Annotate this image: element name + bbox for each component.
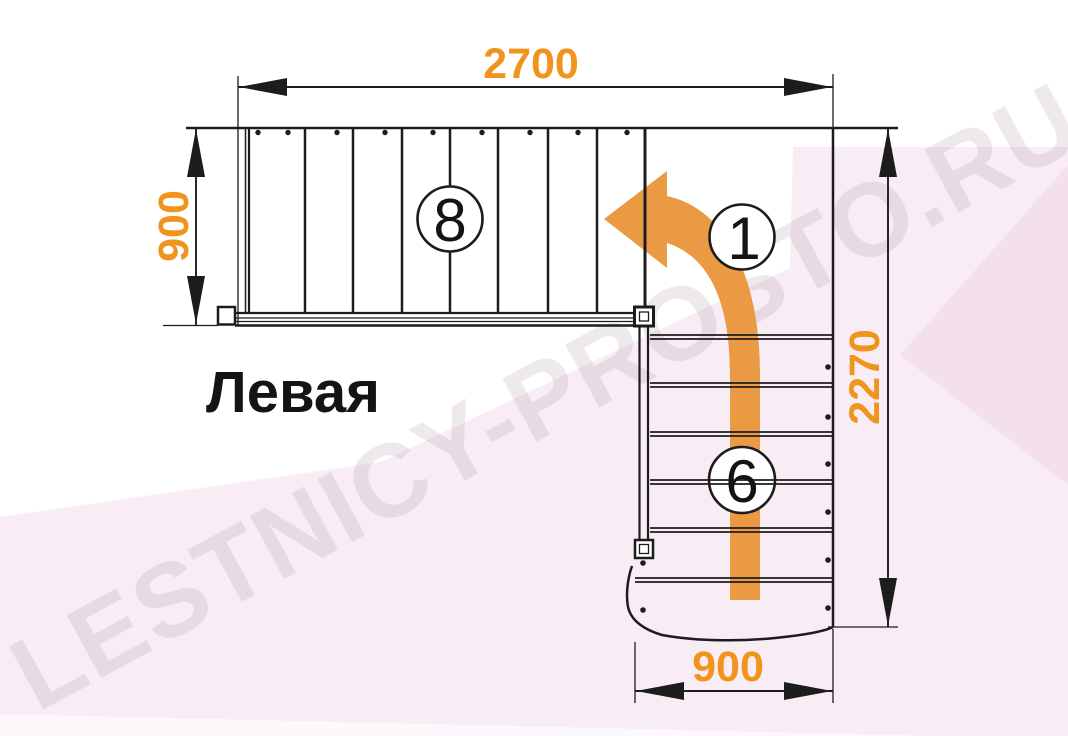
tread-dot [825, 364, 831, 370]
tread-dot [825, 557, 831, 563]
tread-dot [825, 509, 831, 515]
tread-dot [825, 414, 831, 420]
baluster-dot [382, 130, 387, 135]
baluster-dot [285, 130, 290, 135]
baluster-dot [479, 130, 484, 135]
dimension-arrow-left [239, 78, 287, 96]
dimension-bottom-value: 900 [692, 643, 764, 691]
newel-post-corner [635, 307, 654, 326]
baluster-dot [430, 130, 435, 135]
baluster-dot [527, 130, 532, 135]
tread-dot [825, 461, 831, 467]
lower-flight-count-label: 6 [725, 448, 758, 515]
baluster-dot [334, 130, 339, 135]
staircase-plan-diagram: LESTNICY-PROSTO.RU [0, 0, 1068, 736]
baluster-dot [575, 130, 580, 135]
turn-direction-label: 1 [727, 205, 760, 272]
dimension-left-value: 900 [150, 190, 198, 262]
baluster-dot [255, 130, 260, 135]
dimension-arrow-up [187, 129, 205, 177]
dimension-arrow-down [187, 276, 205, 324]
tread-dot [640, 607, 646, 613]
newel-post-upper-left [218, 307, 235, 325]
dimension-arrow-right [784, 78, 832, 96]
upper-flight-count-label: 8 [433, 187, 466, 254]
diagram-title: Левая [206, 360, 380, 425]
dimension-left: 900 [150, 128, 218, 326]
staircase-plan-page: LESTNICY-PROSTO.RU [0, 0, 1068, 736]
tread-dot [825, 605, 831, 611]
dimension-right-value: 2270 [841, 329, 889, 425]
dimension-top-value: 2700 [483, 40, 579, 88]
tread-dot [640, 560, 646, 566]
upper-flight-baluster-dots [255, 130, 629, 135]
newel-post-lower [635, 540, 653, 558]
baluster-dot [624, 130, 629, 135]
